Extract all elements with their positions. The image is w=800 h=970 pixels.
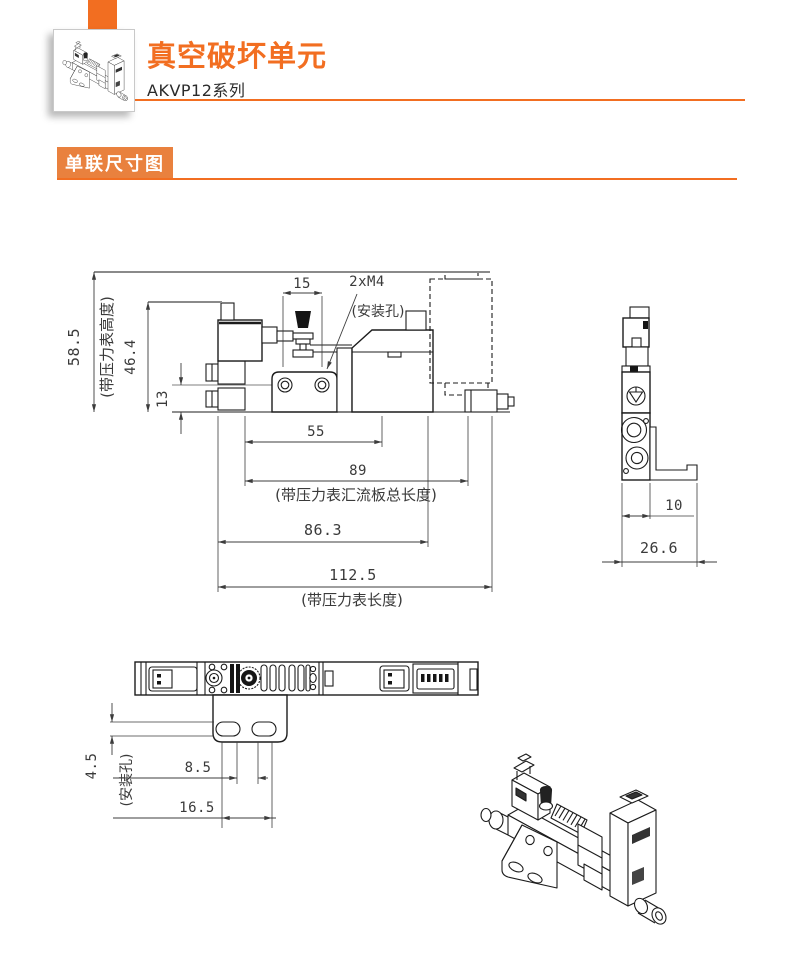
side-view-dimensions: 10 26.6 bbox=[602, 483, 717, 567]
dim-height-note: (带压力表高度) bbox=[98, 296, 116, 398]
dim-height-46-4: 46.4 bbox=[123, 339, 139, 375]
front-view-body bbox=[172, 272, 514, 412]
front-view: 58.5 (带压力表高度) 46.4 13 15 2xM4 (安装孔) 55 bbox=[65, 272, 514, 609]
dimension-drawing-canvas: 58.5 (带压力表高度) 46.4 13 15 2xM4 (安装孔) 55 bbox=[0, 0, 800, 970]
dim-pitch-8-5: 8.5 bbox=[185, 760, 212, 776]
dim-width-55: 55 bbox=[307, 424, 325, 440]
front-view-dimensions: 58.5 (带压力表高度) 46.4 13 15 2xM4 (安装孔) 55 bbox=[65, 272, 492, 609]
dim-width-89-note: (带压力表汇流板总长度) bbox=[275, 486, 437, 504]
isometric-view bbox=[481, 754, 669, 927]
dim-height-13: 13 bbox=[155, 390, 171, 408]
dim-holes-note: (安装孔) bbox=[352, 304, 405, 320]
dim-width-15: 15 bbox=[293, 276, 311, 292]
top-view: 4.5 (安装孔) 8.5 16.5 bbox=[84, 662, 478, 828]
dim-side-26-6: 26.6 bbox=[640, 539, 678, 557]
dim-slot-note: (安装孔) bbox=[119, 754, 135, 807]
dim-holes-2xm4: 2xM4 bbox=[349, 274, 385, 290]
dim-slot-4-5: 4.5 bbox=[84, 753, 100, 780]
dim-height-58-5: 58.5 bbox=[65, 328, 83, 366]
dim-side-10: 10 bbox=[665, 498, 683, 514]
dim-width-89: 89 bbox=[349, 463, 367, 479]
dim-width-86-3: 86.3 bbox=[304, 521, 342, 539]
side-view-body bbox=[622, 307, 698, 480]
side-view: 10 26.6 bbox=[602, 307, 717, 567]
dim-pitch-16-5: 16.5 bbox=[179, 800, 215, 816]
top-view-body bbox=[135, 662, 478, 742]
dim-width-112-5: 112.5 bbox=[329, 566, 377, 584]
dim-width-112-5-note: (带压力表长度) bbox=[301, 591, 403, 609]
